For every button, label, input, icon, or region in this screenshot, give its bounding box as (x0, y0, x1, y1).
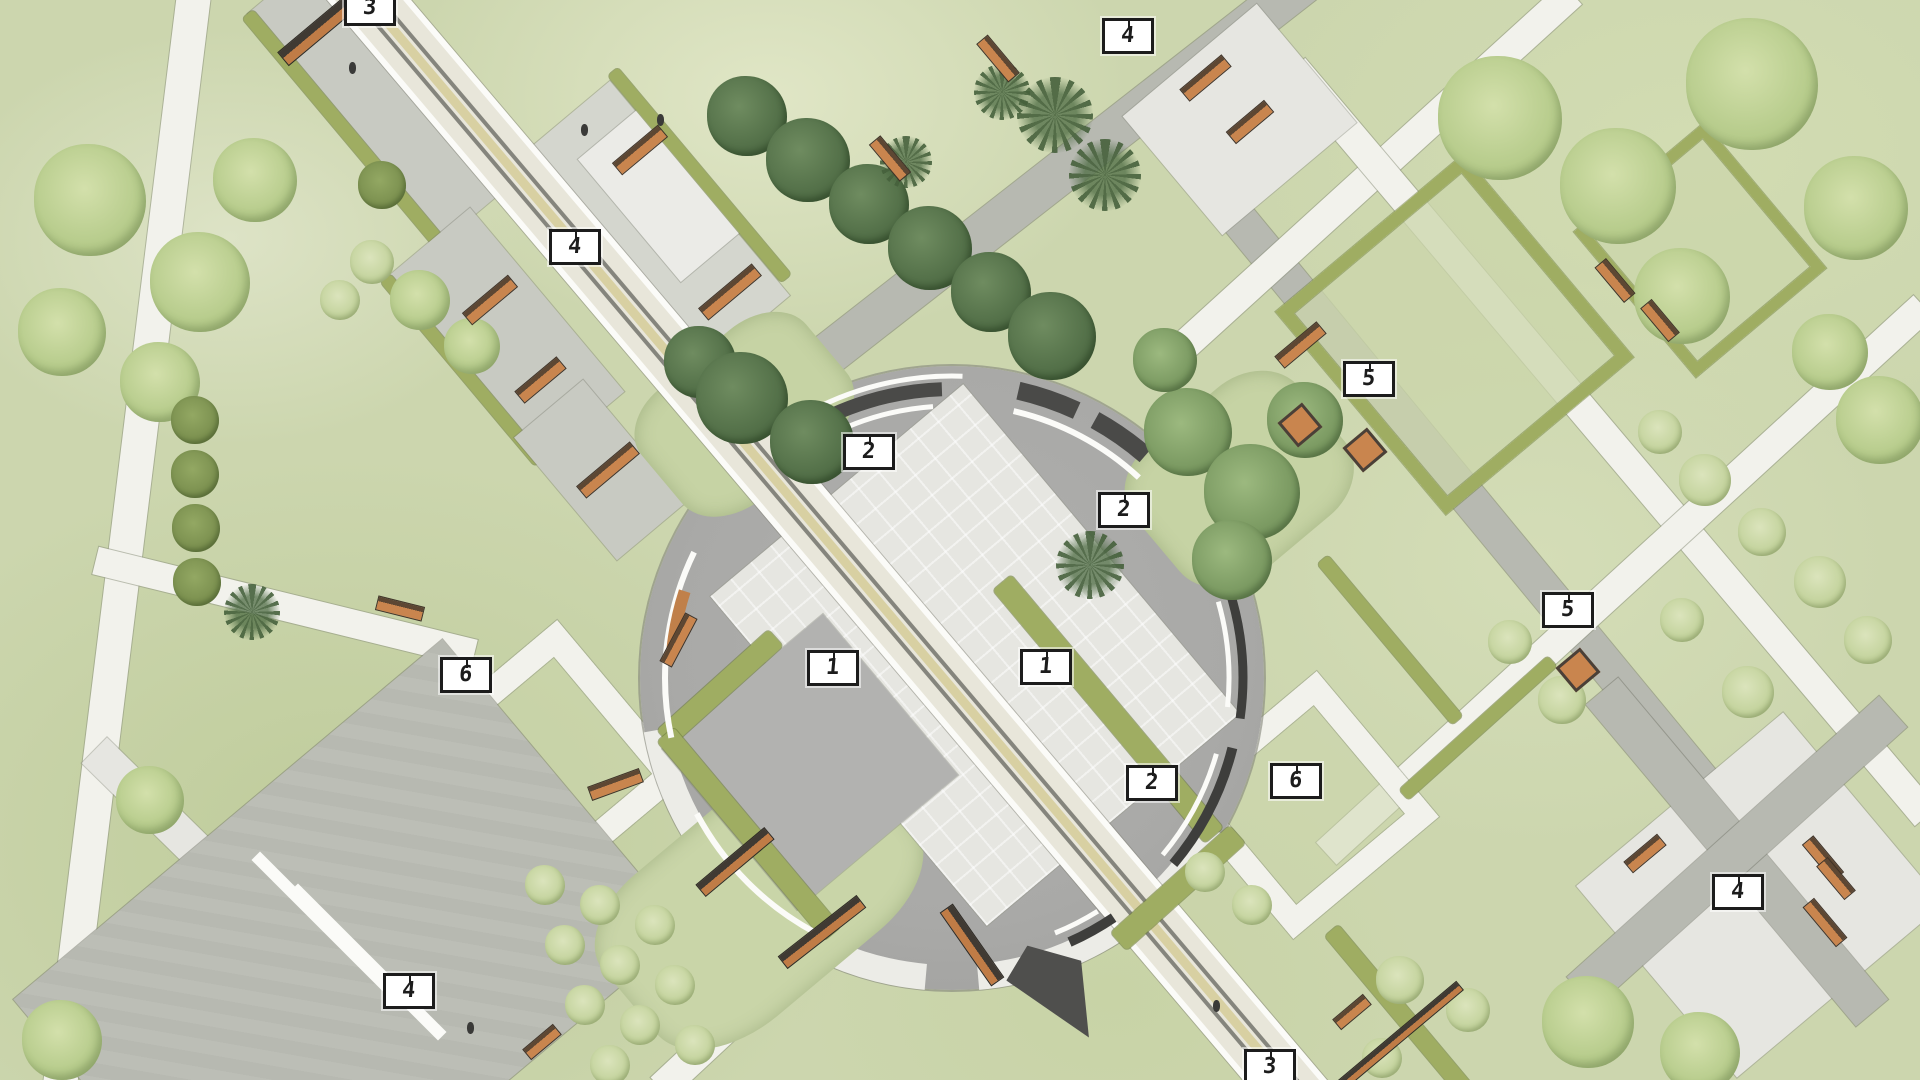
bushe-light (1376, 956, 1424, 1004)
area-label-value: 3 (1262, 1056, 1277, 1078)
bushe-light (1679, 454, 1731, 506)
tree-light (1560, 128, 1676, 244)
tree-light (22, 1000, 102, 1080)
bushe-light (1738, 508, 1786, 556)
area-label: 2 (843, 434, 895, 470)
bushe-light (1232, 885, 1272, 925)
bushe-light (600, 945, 640, 985)
area-label-value: 4 (567, 236, 582, 258)
gras-tufts (224, 584, 280, 640)
area-label: 4 (549, 229, 601, 265)
bushe-light (620, 1005, 660, 1045)
tree-light (34, 144, 146, 256)
bushe-dark (171, 450, 219, 498)
area-label-value: 3 (362, 0, 377, 19)
area-label: 1 (807, 650, 859, 686)
area-label-value: 5 (1361, 368, 1376, 390)
tree-light (390, 270, 450, 330)
area-label-value: 2 (1144, 772, 1159, 794)
bushe-light (1794, 556, 1846, 608)
bushe-light (320, 280, 360, 320)
area-label-value: 4 (1730, 881, 1745, 903)
area-label: 6 (440, 657, 492, 693)
area-label-value: 1 (1038, 656, 1053, 678)
bushe-light (1844, 616, 1892, 664)
tree-light (18, 288, 106, 376)
area-label: 2 (1098, 492, 1150, 528)
area-label: 4 (1102, 18, 1154, 54)
bushe-light (590, 1045, 630, 1080)
tree-dark (770, 400, 854, 484)
bushe-light (1660, 598, 1704, 642)
area-label-value: 5 (1560, 599, 1575, 621)
tree-dark (1008, 292, 1096, 380)
tree-light (444, 318, 500, 374)
bushe-light (565, 985, 605, 1025)
area-label-value: 4 (1120, 25, 1135, 47)
area-label-value: 2 (861, 441, 876, 463)
area-label-value: 4 (401, 980, 416, 1002)
tree-mid (1133, 328, 1197, 392)
bushe-dark (358, 161, 406, 209)
person-glyph (349, 62, 356, 74)
person-glyph (581, 124, 588, 136)
bushe-light (1185, 852, 1225, 892)
tree-light (1804, 156, 1908, 260)
tree-light (1438, 56, 1562, 180)
bushe-light (525, 865, 565, 905)
tree-mid (1192, 520, 1272, 600)
gras-tufts (1056, 531, 1124, 599)
area-label: 6 (1270, 763, 1322, 799)
area-label: 4 (1712, 874, 1764, 910)
area-label: 1 (1020, 649, 1072, 685)
tree-light (150, 232, 250, 332)
bushe-dark (172, 504, 220, 552)
bushe-light (1722, 666, 1774, 718)
area-label: 5 (1542, 592, 1594, 628)
bushe-dark (173, 558, 221, 606)
area-label: 3 (344, 0, 396, 26)
area-label: 5 (1343, 361, 1395, 397)
person-glyph (657, 114, 664, 126)
area-label-value: 6 (458, 664, 473, 686)
bushe-light (635, 905, 675, 945)
tree-light (1542, 976, 1634, 1068)
bushe-light (675, 1025, 715, 1065)
person-glyph (1213, 1000, 1220, 1012)
site-plan-canvas: 344522561126443 (0, 0, 1920, 1080)
bushe-light (545, 925, 585, 965)
bushe-light (655, 965, 695, 1005)
tree-light (1634, 248, 1730, 344)
area-label-value: 1 (825, 657, 840, 679)
area-label-value: 2 (1116, 499, 1131, 521)
bushe-light (350, 240, 394, 284)
bushe-dark (171, 396, 219, 444)
area-label: 2 (1126, 765, 1178, 801)
tree-light (213, 138, 297, 222)
area-label: 3 (1244, 1049, 1296, 1080)
gras-tufts (1069, 139, 1141, 211)
person-glyph (467, 1022, 474, 1034)
tree-light (1686, 18, 1818, 150)
bushe-light (1638, 410, 1682, 454)
tree-light (1792, 314, 1868, 390)
area-label: 4 (383, 973, 435, 1009)
tree-light (1836, 376, 1920, 464)
bench (1332, 994, 1372, 1030)
bushe-light (1488, 620, 1532, 664)
bushe-light (580, 885, 620, 925)
area-label-value: 6 (1288, 770, 1303, 792)
tree-light (116, 766, 184, 834)
